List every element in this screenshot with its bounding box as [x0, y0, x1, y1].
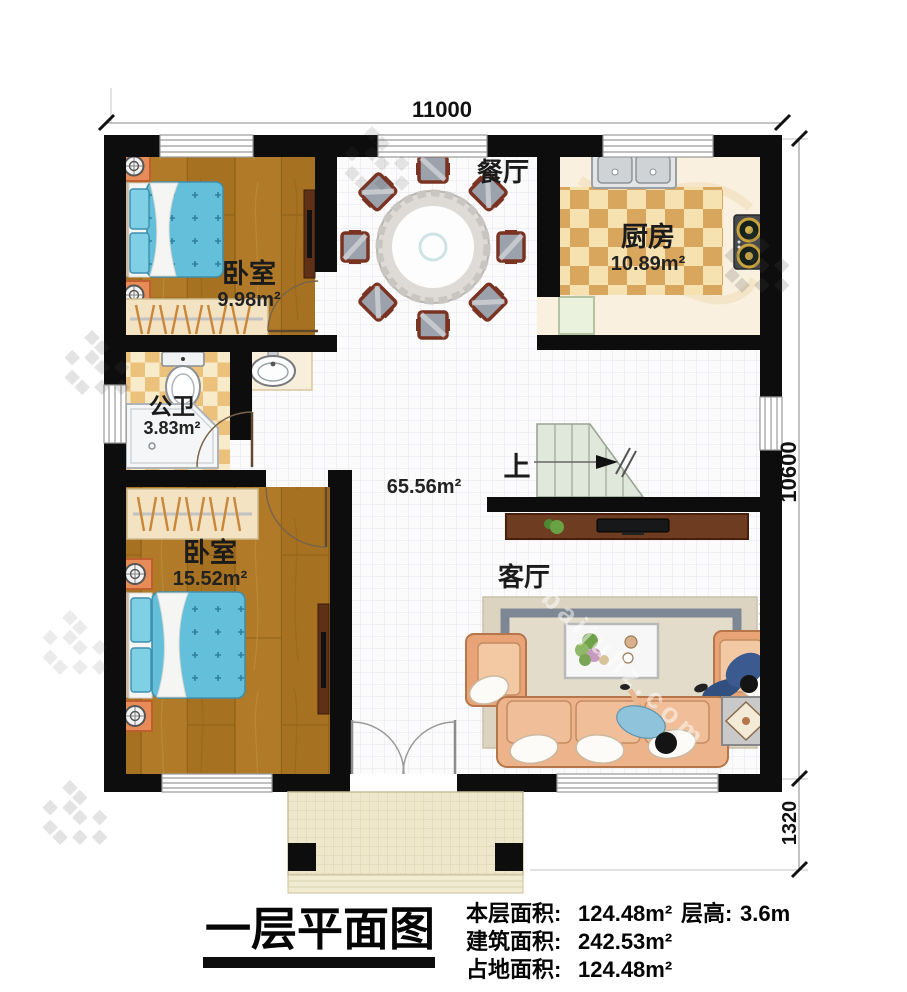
area-bathroom: 3.83m² — [143, 418, 200, 438]
porch — [288, 792, 523, 893]
label-living: 客厅 — [498, 562, 550, 592]
dimension-top-width: 11000 — [412, 97, 472, 122]
stat-floor-height-label: 层高: — [681, 901, 732, 926]
tv-cabinet-icon — [506, 514, 748, 539]
double-bed-icon — [122, 182, 223, 277]
window — [162, 774, 272, 792]
label-dining: 餐厅 — [477, 157, 529, 187]
area-bedroom-bottom: 15.52m² — [173, 568, 248, 590]
title-underline — [203, 957, 435, 968]
label-stairs-up: 上 — [504, 452, 531, 482]
wardrobe-icon — [127, 489, 258, 539]
stat-building-area-value: 242.53m² — [578, 929, 672, 954]
label-kitchen: 厨房 — [621, 222, 675, 252]
double-bed-icon — [122, 592, 245, 698]
window — [378, 135, 487, 157]
page-title: 一层平面图 — [205, 903, 435, 955]
stat-land-area-label: 占地面积: — [466, 957, 561, 982]
fridge-icon — [559, 297, 594, 334]
floor-plan-svg: 11000 10600 1320 餐厅 厨房 10.89m² 卧室 9.98m²… — [0, 0, 907, 992]
window — [603, 135, 713, 157]
area-hall: 65.56m² — [387, 476, 462, 498]
title-block: 一层平面图 本层面积: 124.48m² 层高: 3.6m 建筑面积: 242.… — [203, 901, 790, 982]
dimension-porch-depth: 1320 — [779, 801, 801, 846]
area-bedroom-top: 9.98m² — [217, 289, 281, 311]
floor-plan-page: 11000 10600 1320 餐厅 厨房 10.89m² 卧室 9.98m²… — [0, 0, 907, 992]
label-bathroom: 公卫 — [149, 393, 195, 419]
window — [557, 774, 718, 792]
stat-floor-area-label: 本层面积: — [466, 901, 561, 926]
area-kitchen: 10.89m² — [611, 253, 686, 275]
stat-floor-area-value: 124.48m² — [578, 901, 672, 926]
label-bedroom-bottom: 卧室 — [183, 537, 237, 568]
window — [160, 135, 253, 157]
stat-building-area-label: 建筑面积: — [466, 929, 561, 954]
stat-floor-height-value: 3.6m — [740, 901, 790, 926]
label-bedroom-top: 卧室 — [222, 258, 276, 289]
stat-land-area-value: 124.48m² — [578, 957, 672, 982]
dimension-right-height: 10600 — [776, 441, 801, 502]
